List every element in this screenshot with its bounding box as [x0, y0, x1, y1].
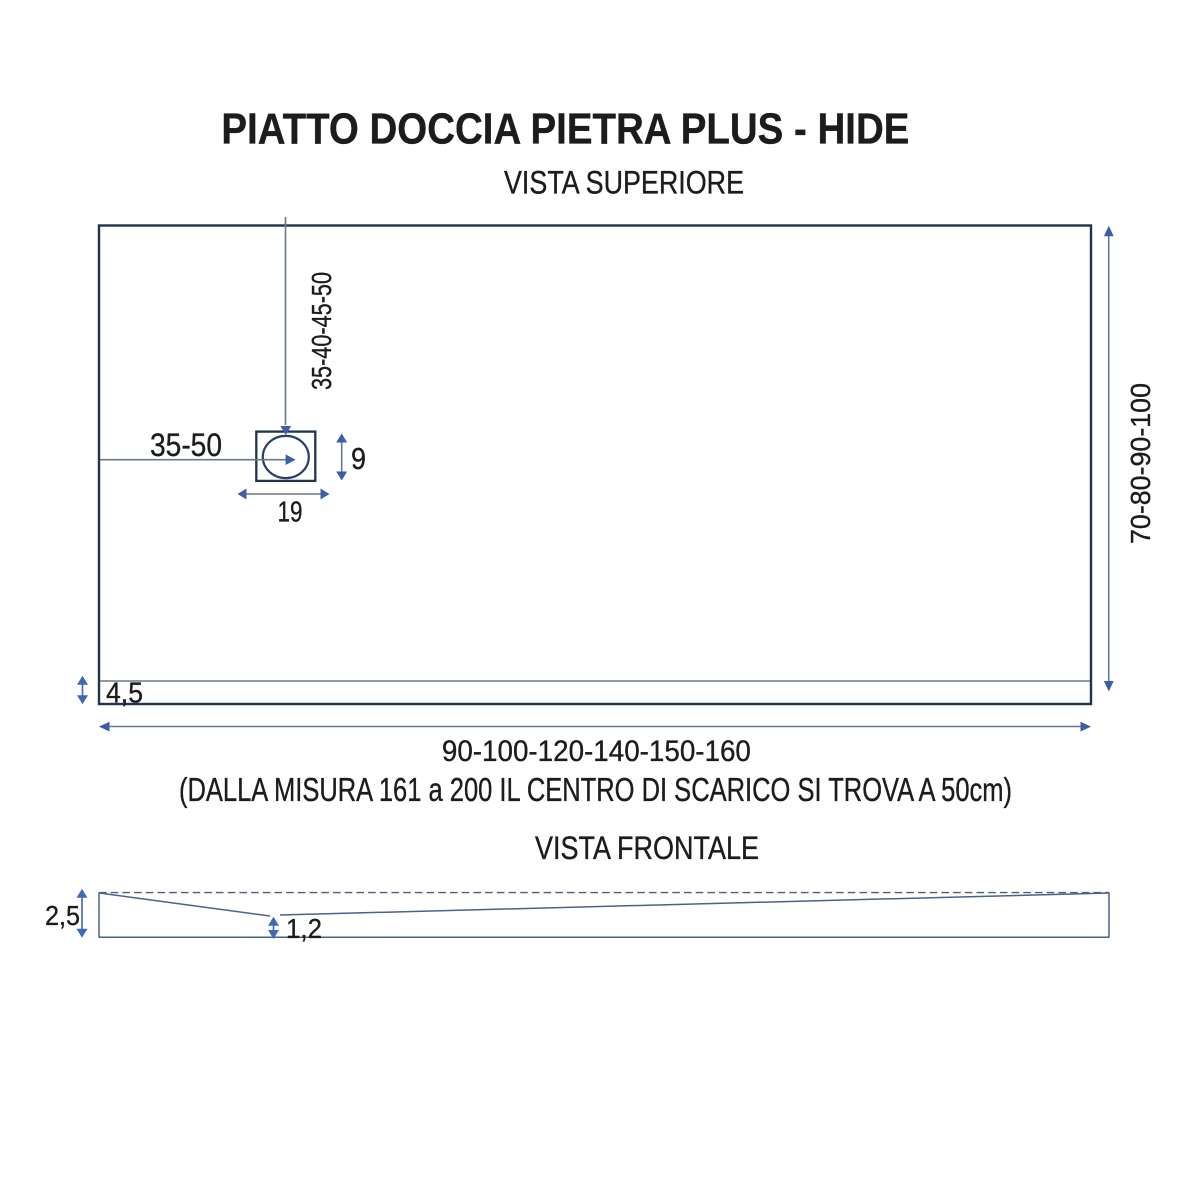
svg-text:70-80-90-100: 70-80-90-100 — [1125, 383, 1156, 544]
svg-text:(DALLA MISURA 161 a 200 IL CEN: (DALLA MISURA 161 a 200 IL CENTRO DI SCA… — [179, 771, 1012, 808]
svg-text:1,2: 1,2 — [286, 913, 322, 944]
svg-text:90-100-120-140-150-160: 90-100-120-140-150-160 — [442, 735, 751, 768]
svg-text:35-40-45-50: 35-40-45-50 — [306, 272, 337, 390]
svg-text:VISTA SUPERIORE: VISTA SUPERIORE — [504, 164, 744, 200]
svg-text:VISTA FRONTALE: VISTA FRONTALE — [535, 830, 759, 866]
svg-text:9: 9 — [351, 442, 366, 476]
svg-text:2,5: 2,5 — [45, 900, 80, 931]
svg-text:PIATTO DOCCIA PIETRA PLUS - HI: PIATTO DOCCIA PIETRA PLUS - HIDE — [221, 104, 909, 153]
svg-text:35-50: 35-50 — [150, 427, 222, 463]
svg-text:19: 19 — [278, 497, 303, 529]
svg-text:4,5: 4,5 — [106, 678, 143, 710]
